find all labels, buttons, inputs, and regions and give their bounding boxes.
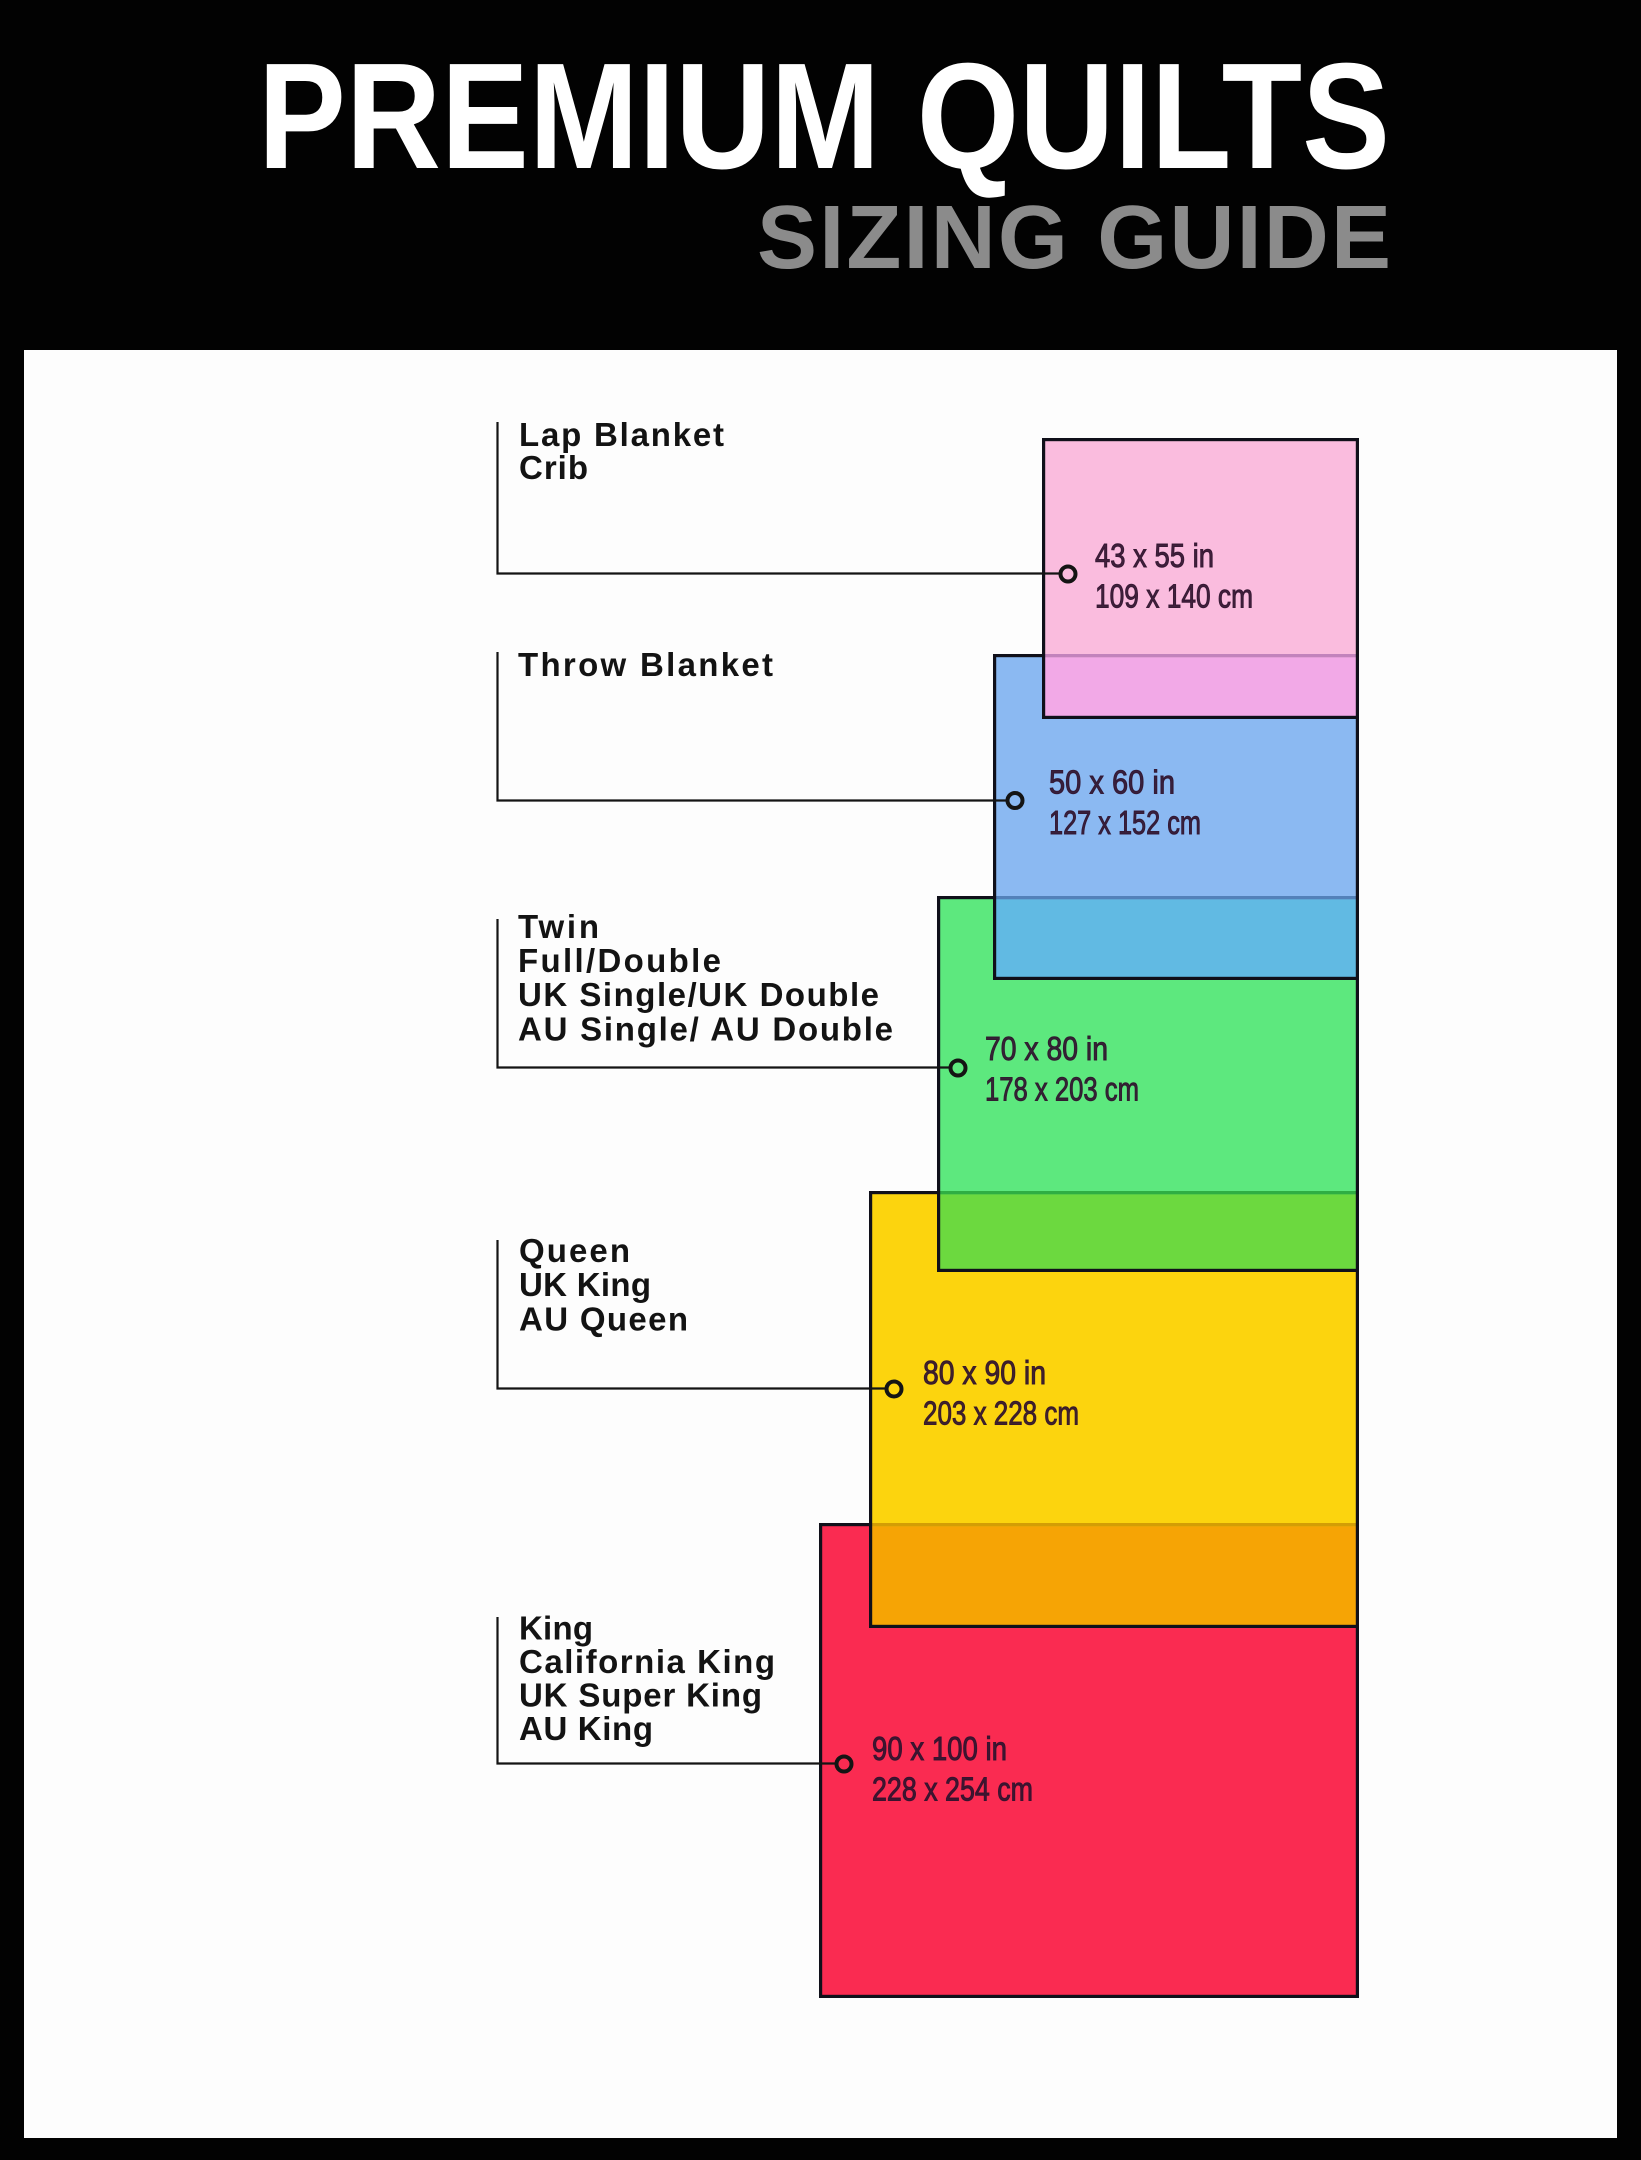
svg-text:50 x 60 in: 50 x 60 in bbox=[1049, 764, 1175, 801]
svg-text:228 x 254 cm: 228 x 254 cm bbox=[872, 1771, 1033, 1808]
svg-text:AU Single/ AU Double: AU Single/ AU Double bbox=[518, 1011, 893, 1048]
svg-text:203 x 228 cm: 203 x 228 cm bbox=[923, 1395, 1079, 1432]
svg-text:43 x 55 in: 43 x 55 in bbox=[1095, 537, 1214, 574]
svg-text:90 x 100 in: 90 x 100 in bbox=[872, 1730, 1007, 1767]
svg-text:PREMIUM QUILTS: PREMIUM QUILTS bbox=[258, 31, 1390, 200]
svg-text:Throw Blanket: Throw Blanket bbox=[518, 646, 773, 683]
svg-text:178 x 203 cm: 178 x 203 cm bbox=[985, 1071, 1139, 1108]
svg-text:UK King: UK King bbox=[519, 1266, 651, 1303]
svg-text:109 x 140 cm: 109 x 140 cm bbox=[1095, 578, 1253, 615]
svg-text:Queen: Queen bbox=[519, 1232, 630, 1269]
svg-text:UK Super King: UK Super King bbox=[519, 1677, 762, 1714]
svg-text:Twin: Twin bbox=[518, 908, 599, 945]
svg-text:Full/Double: Full/Double bbox=[518, 942, 721, 979]
svg-text:Crib: Crib bbox=[519, 449, 588, 486]
svg-text:70 x 80 in: 70 x 80 in bbox=[985, 1030, 1108, 1067]
svg-text:Lap Blanket: Lap Blanket bbox=[519, 416, 724, 453]
svg-text:UK Single/UK Double: UK Single/UK Double bbox=[518, 976, 879, 1013]
svg-text:King: King bbox=[519, 1610, 593, 1647]
svg-text:SIZING GUIDE: SIZING GUIDE bbox=[757, 188, 1391, 288]
svg-text:AU Queen: AU Queen bbox=[519, 1301, 688, 1338]
svg-text:California King: California King bbox=[519, 1643, 775, 1680]
svg-text:80 x 90 in: 80 x 90 in bbox=[923, 1354, 1046, 1391]
svg-text:AU King: AU King bbox=[519, 1710, 653, 1747]
svg-text:127 x 152 cm: 127 x 152 cm bbox=[1049, 804, 1201, 841]
